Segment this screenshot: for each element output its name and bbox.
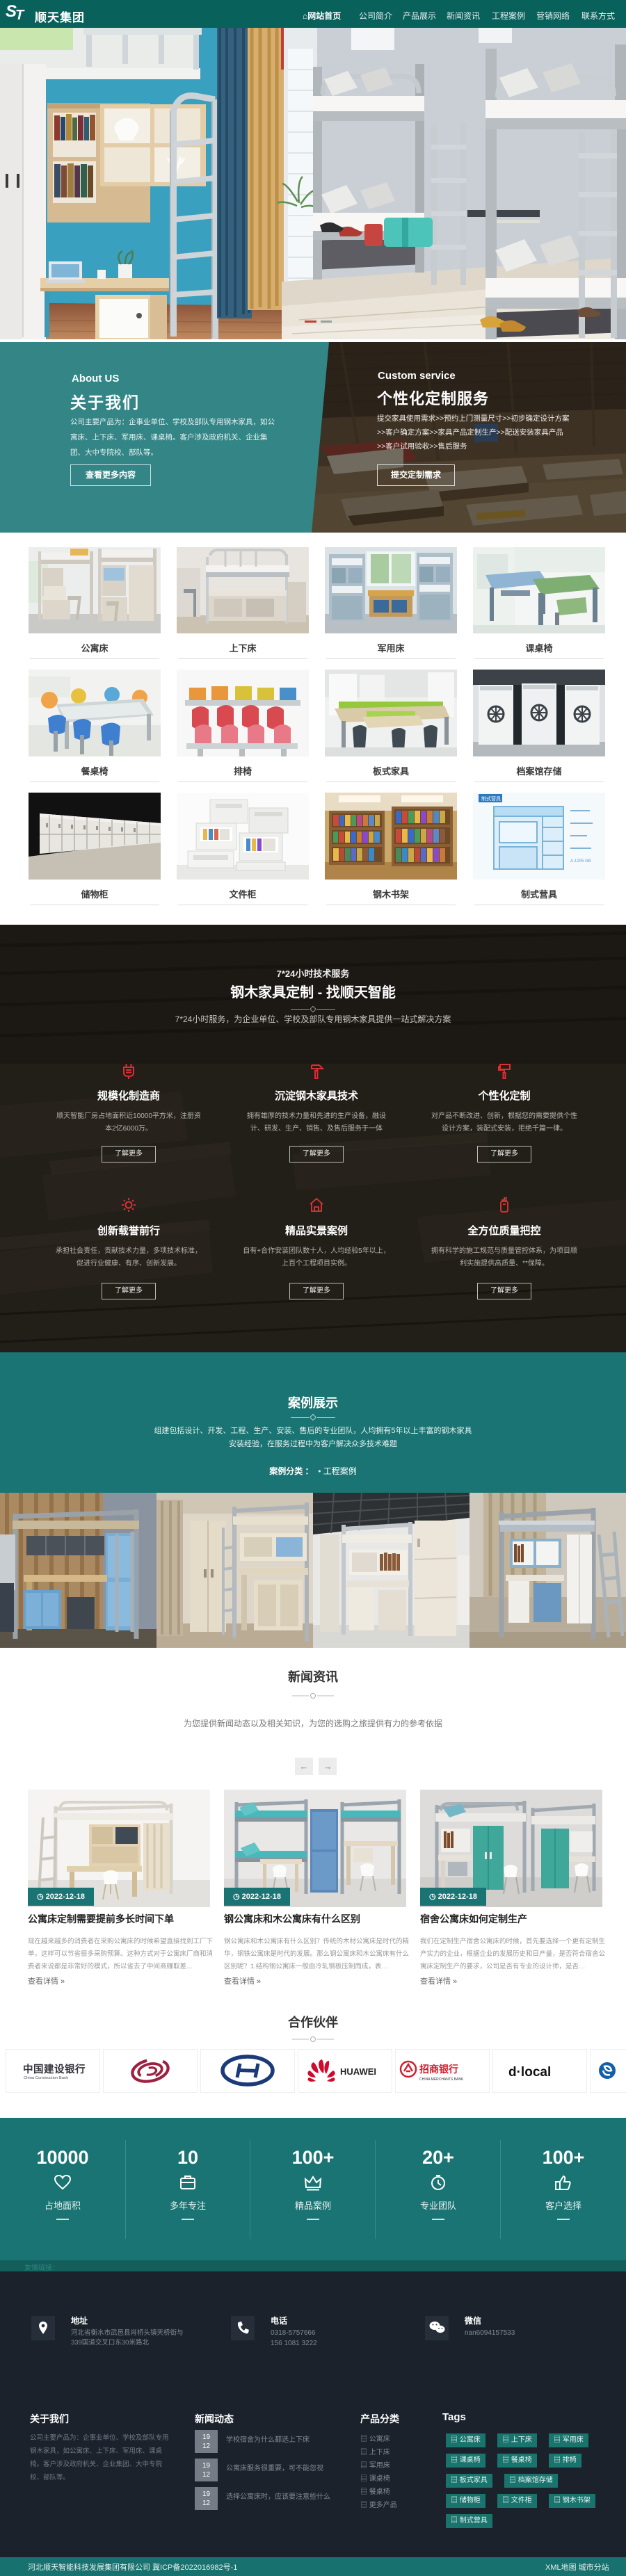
svg-text:中国建设银行: 中国建设银行: [23, 2063, 86, 2075]
svg-text:d·local: d·local: [508, 2065, 551, 2080]
svg-text:CHINA MERCHANTS BANK: CHINA MERCHANTS BANK: [419, 2077, 464, 2082]
svg-text:制式营具: 制式营具: [481, 795, 501, 802]
svg-text:HUAWEI: HUAWEI: [340, 2066, 376, 2077]
svg-text:A-1205 GB: A-1205 GB: [570, 859, 591, 864]
svg-text:招商银行: 招商银行: [419, 2064, 458, 2075]
svg-text:China Construction Bank: China Construction Bank: [24, 2076, 68, 2080]
